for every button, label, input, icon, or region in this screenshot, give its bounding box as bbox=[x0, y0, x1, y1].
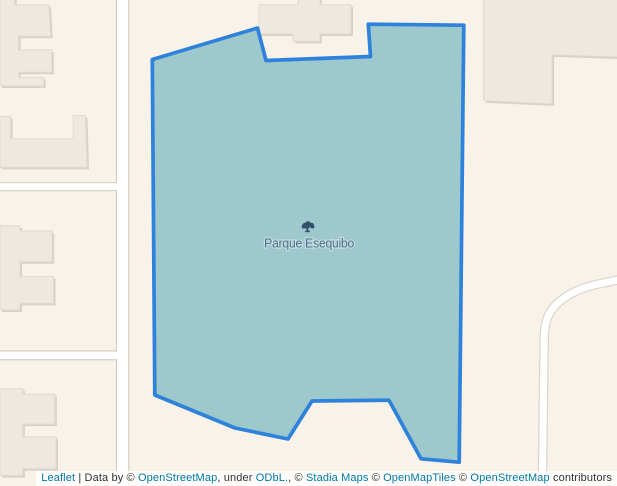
svg-text:Parque Esequibo: Parque Esequibo bbox=[264, 237, 354, 251]
